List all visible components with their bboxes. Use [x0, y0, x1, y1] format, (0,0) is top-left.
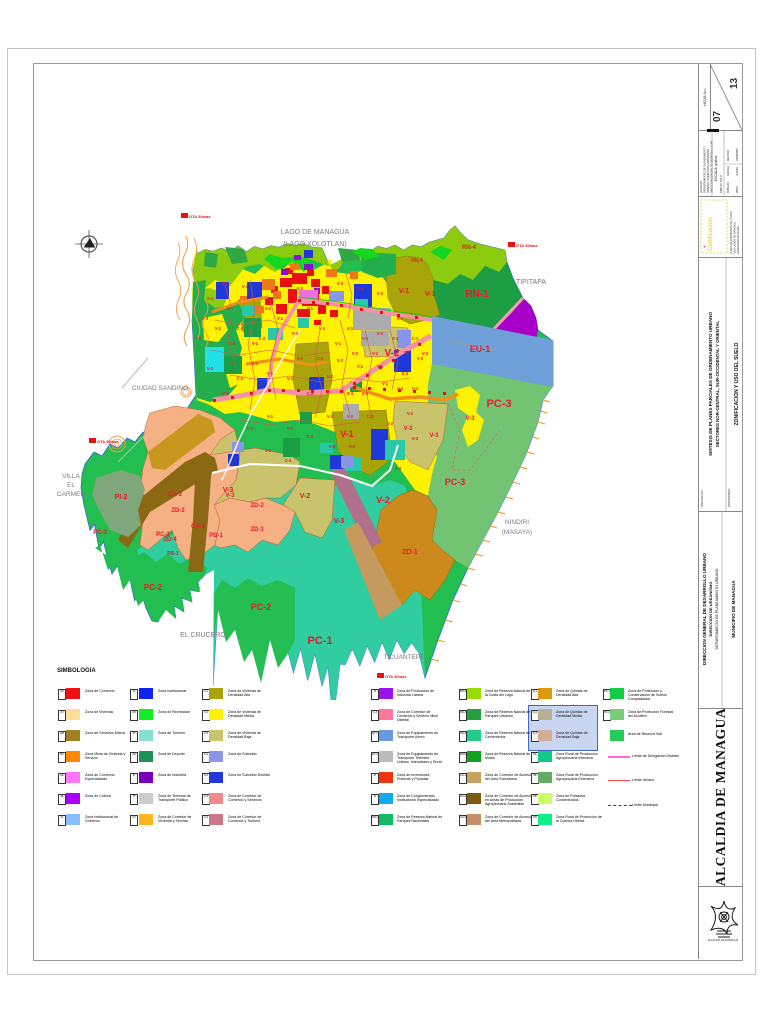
svg-text:V-2: V-2	[362, 336, 369, 341]
svg-text:V-2: V-2	[376, 495, 390, 505]
svg-text:V-2: V-2	[384, 348, 399, 359]
svg-text:V-2: V-2	[407, 411, 414, 416]
svg-text:V-2: V-2	[247, 426, 254, 431]
svg-text:GTA 30max: GTA 30max	[189, 214, 211, 219]
svg-text:ZD-2: ZD-2	[250, 503, 264, 509]
svg-text:ALCALDIA DE MANAGUA: ALCALDIA DE MANAGUA	[713, 708, 728, 886]
svg-text:SINTESIS DE PLANES PARCIALES D: SINTESIS DE PLANES PARCIALES DE ORDENAMI…	[708, 312, 713, 456]
svg-text:V-2: V-2	[207, 366, 214, 371]
svg-text:DIRECCION DE URBANISMO: DIRECCION DE URBANISMO	[708, 582, 713, 637]
svg-text:C-2: C-2	[412, 336, 419, 341]
svg-text:V-2: V-2	[215, 326, 222, 331]
svg-text:PB-1: PB-1	[209, 533, 223, 539]
svg-text:V-2: V-2	[357, 364, 364, 369]
svg-text:Z-4: Z-4	[207, 296, 214, 301]
svg-text:V-3: V-3	[412, 436, 419, 441]
svg-text:CA-2: CA-2	[191, 524, 206, 530]
svg-text:V-1: V-1	[277, 316, 284, 321]
svg-text:V-2: V-2	[372, 351, 379, 356]
svg-text:RN-1: RN-1	[465, 289, 489, 300]
svg-text:V-2: V-2	[297, 356, 304, 361]
svg-text:V-2: V-2	[377, 331, 384, 336]
svg-text:DIBUJO: D.P.U.: DIBUJO: D.P.U.	[719, 174, 723, 193]
svg-text:TIPITAPA: TIPITAPA	[516, 279, 546, 286]
svg-text:VILLA: VILLA	[62, 473, 80, 480]
svg-text:DIBUJO: DIBUJO	[726, 181, 730, 193]
svg-text:V-2: V-2	[222, 391, 229, 396]
svg-text:V-3: V-3	[429, 433, 439, 439]
svg-text:V-3: V-3	[412, 386, 419, 391]
svg-text:FECHA: FECHA	[726, 166, 730, 176]
svg-text:(LAGO XOLOTLAN): (LAGO XOLOTLAN)	[283, 241, 346, 248]
svg-text:Z-4: Z-4	[395, 466, 402, 471]
svg-text:V-3: V-3	[225, 493, 235, 499]
svg-text:V-3: V-3	[202, 316, 209, 321]
svg-text:V-3: V-3	[397, 386, 404, 391]
svg-text:DEPARTAMENTO DE PLANEAMIENTO: DEPARTAMENTO DE PLANEAMIENTO	[703, 147, 707, 193]
svg-text:V-3: V-3	[337, 358, 344, 363]
svg-text:V-1: V-1	[227, 306, 234, 311]
svg-text:NINDIRI: NINDIRI	[505, 519, 529, 526]
svg-text:JUNIO: JUNIO	[735, 166, 739, 176]
svg-text:V-3: V-3	[403, 426, 413, 432]
svg-text:V-2: V-2	[265, 306, 272, 311]
svg-text:APROBO: APROBO	[735, 147, 739, 161]
svg-text:V-3: V-3	[292, 331, 299, 336]
svg-text:Z-4: Z-4	[252, 361, 259, 366]
svg-text:PC-2: PC-2	[144, 583, 163, 592]
svg-text:CIUDAD SANDINO: CIUDAD SANDINO	[132, 385, 188, 392]
svg-text:C-2: C-2	[317, 356, 324, 361]
svg-text:RN-4: RN-4	[411, 258, 423, 264]
svg-text:URBANO / DIRECCION URBANISMO: URBANO / DIRECCION URBANISMO	[706, 149, 710, 193]
svg-text:DEPARTAMENTO DE PLANEAMIENTO U: DEPARTAMENTO DE PLANEAMIENTO URBANO	[715, 568, 719, 649]
svg-text:V-1: V-1	[425, 291, 436, 298]
svg-text:GTA 30max: GTA 30max	[97, 439, 119, 444]
svg-text:V-2: V-2	[327, 374, 334, 379]
svg-text:V-3: V-3	[465, 416, 475, 422]
svg-text:CA-2: CA-2	[168, 492, 183, 498]
svg-text:+: +	[702, 245, 707, 248]
svg-text:ALCALDIA DE MANAGUA: ALCALDIA DE MANAGUA	[708, 938, 739, 942]
svg-text:(MASAYA): (MASAYA)	[502, 529, 532, 536]
svg-text:HOJA No.: HOJA No.	[702, 88, 707, 106]
svg-text:ZONIFICACION Y USO DEL SUELO: ZONIFICACION Y USO DEL SUELO	[734, 342, 740, 425]
svg-text:V-1: V-1	[267, 414, 274, 419]
svg-text:PB-1: PB-1	[167, 551, 179, 557]
svg-text:V-2: V-2	[195, 336, 202, 341]
svg-text:V-2: V-2	[347, 414, 354, 419]
svg-text:CONTENIDO:: CONTENIDO:	[727, 488, 731, 507]
svg-text:V-3: V-3	[242, 284, 249, 289]
svg-text:Z-4: Z-4	[362, 391, 369, 396]
svg-text:ORDENANZA MUNICIPAL: ORDENANZA MUNICIPAL	[737, 225, 740, 254]
svg-text:V-2: V-2	[377, 291, 384, 296]
svg-text:EL CRUCERO: EL CRUCERO	[180, 632, 226, 639]
svg-text:PC-3: PC-3	[93, 530, 107, 536]
svg-text:V-3: V-3	[327, 414, 334, 419]
svg-text:V-2: V-2	[352, 351, 359, 356]
svg-text:V-1: V-1	[267, 371, 274, 376]
svg-text:V-1: V-1	[399, 288, 410, 295]
svg-text:Z-4: Z-4	[357, 286, 364, 291]
svg-text:V-3: V-3	[329, 444, 336, 449]
svg-text:DIRECCION GENERAL DE DESARROLL: DIRECCION GENERAL DE DESARROLLO URBANO	[702, 553, 707, 665]
svg-text:ZD-1: ZD-1	[402, 549, 418, 556]
svg-text:V-2: V-2	[300, 493, 311, 500]
svg-text:PC-3: PC-3	[486, 398, 511, 410]
svg-text:Z-4: Z-4	[285, 458, 292, 463]
svg-text:SECTORES NOR-CENTRAL, SUR-OCCI: SECTORES NOR-CENTRAL, SUR-OCCIDENTAL Y O…	[715, 321, 720, 448]
svg-text:TICUANTEPE: TICUANTEPE	[383, 654, 425, 661]
svg-text:V-1: V-1	[287, 426, 294, 431]
svg-text:RN-4: RN-4	[462, 245, 477, 251]
svg-text:V-2: V-2	[297, 286, 304, 291]
svg-text:PC-3: PC-3	[445, 477, 466, 487]
svg-text:Certificacion: Certificacion	[708, 218, 714, 251]
svg-text:V-2: V-2	[387, 421, 394, 426]
svg-text:2004: 2004	[735, 186, 739, 193]
svg-text:Z-4: Z-4	[402, 371, 409, 376]
svg-text:V-3: V-3	[337, 281, 344, 286]
svg-text:EU-1: EU-1	[470, 344, 491, 354]
svg-text:V-1: V-1	[307, 306, 314, 311]
svg-text:ESCALA: grafica: ESCALA: grafica	[714, 155, 718, 181]
svg-text:V-1: V-1	[347, 326, 354, 331]
svg-text:CARMEN: CARMEN	[57, 491, 85, 498]
svg-text:GTA 30max: GTA 30max	[516, 243, 538, 248]
svg-text:C-2: C-2	[259, 336, 266, 341]
svg-text:LEVANTO:: LEVANTO:	[699, 180, 703, 193]
svg-text:PI-2: PI-2	[115, 494, 128, 501]
svg-text:V-1: V-1	[397, 316, 404, 321]
svg-text:13: 13	[729, 77, 740, 89]
svg-text:ZD-3: ZD-3	[250, 527, 264, 533]
svg-text:07: 07	[712, 110, 723, 122]
svg-text:C-2: C-2	[307, 434, 314, 439]
svg-text:DIRECCION GENERAL DE DESARROLL: DIRECCION GENERAL DE DESARROLLO URB.	[711, 140, 714, 193]
svg-text:C-2: C-2	[307, 391, 314, 396]
svg-text:C-2: C-2	[237, 326, 244, 331]
svg-text:V-2: V-2	[349, 444, 356, 449]
svg-text:LAGO DE MANAGUA: LAGO DE MANAGUA	[281, 229, 350, 236]
svg-text:V-1: V-1	[335, 341, 342, 346]
svg-text:PC-1: PC-1	[156, 532, 170, 538]
svg-text:V-2: V-2	[265, 448, 272, 453]
svg-text:V-3: V-3	[334, 518, 345, 525]
svg-text:C-2: C-2	[367, 414, 374, 419]
svg-text:V-1: V-1	[252, 341, 259, 346]
svg-text:MUNICIPIO DE MANAGUA: MUNICIPIO DE MANAGUA	[731, 580, 736, 638]
svg-text:Z-4: Z-4	[347, 391, 354, 396]
svg-text:REVISO: REVISO	[726, 149, 730, 161]
svg-text:V-1: V-1	[377, 364, 384, 369]
svg-text:V-1: V-1	[340, 429, 354, 439]
svg-text:EL: EL	[67, 482, 75, 489]
svg-text:PC-2: PC-2	[251, 602, 272, 612]
svg-text:GTA 30max: GTA 30max	[385, 674, 407, 679]
svg-text:ZD-2: ZD-2	[171, 508, 185, 514]
svg-text:PC-1: PC-1	[307, 635, 332, 647]
svg-text:V-2: V-2	[417, 356, 424, 361]
svg-text:PROYECTO:: PROYECTO:	[700, 489, 704, 507]
